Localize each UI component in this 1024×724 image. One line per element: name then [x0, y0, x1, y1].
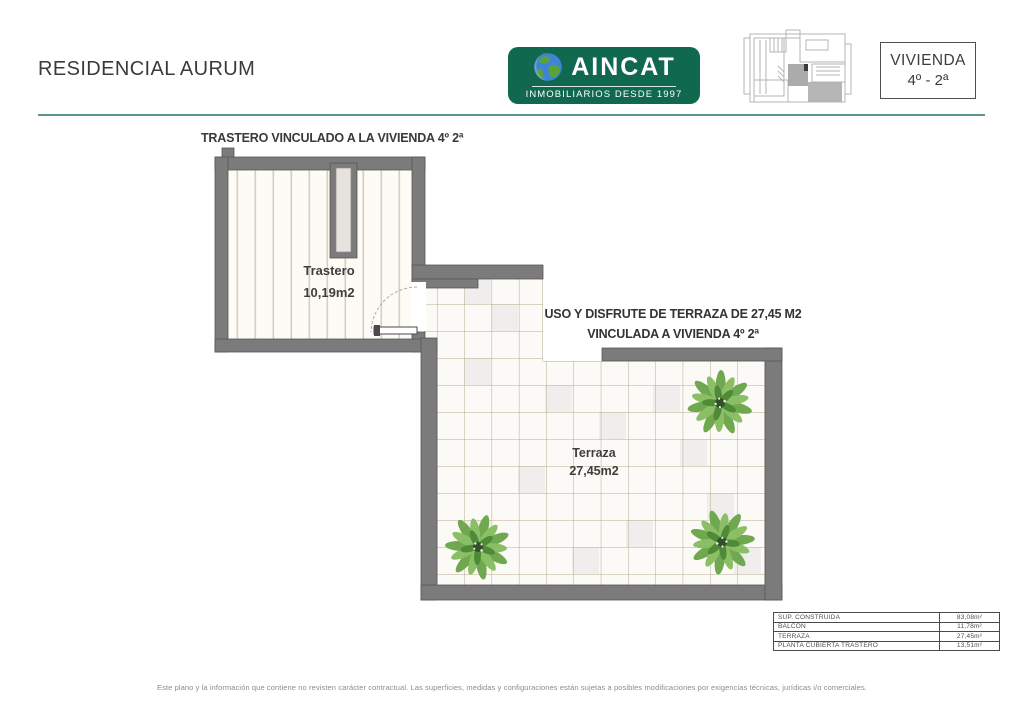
table-row: TERRAZA 27,45m² — [774, 632, 1000, 642]
table-row: SUP. CONSTRUIDA 83,08m² — [774, 613, 1000, 623]
table-row: BALCÓN 11,78m² — [774, 622, 1000, 632]
surface-value: 27,45m² — [940, 632, 1000, 642]
page-title: RESIDENCIAL AURUM — [38, 58, 255, 81]
terraza-note-line2: VINCULADA A VIVIENDA 4º 2ª — [587, 327, 759, 341]
terraza-note-line1: USO Y DISFRUTE DE TERRAZA DE 27,45 M2 — [544, 307, 801, 321]
table-row: PLANTA CUBIERTA TRASTERO 13,51m² — [774, 641, 1000, 651]
surface-label: TERRAZA — [774, 632, 940, 642]
globe-icon — [532, 51, 564, 83]
trastero-area: 10,19m2 — [303, 285, 354, 300]
logo-tagline: INMOBILIARIOS DESDE 1997 — [526, 89, 683, 100]
logo-wordmark: AINCAT — [571, 55, 676, 80]
surface-label: PLANTA CUBIERTA TRASTERO — [774, 641, 940, 651]
surface-value: 11,78m² — [940, 622, 1000, 632]
floor-plan: TRASTERO VINCULADO A LA VIVIENDA 4º 2ª — [200, 125, 810, 615]
terraza-label: Terraza — [572, 446, 617, 460]
trastero-caption: TRASTERO VINCULADO A LA VIVIENDA 4º 2ª — [201, 131, 464, 145]
unit-badge-line2: 4º - 2ª — [907, 72, 948, 89]
unit-badge-line1: VIVIENDA — [890, 52, 966, 70]
disclaimer-text: Este plano y la información que contiene… — [0, 683, 1024, 692]
unit-badge: VIVIENDA 4º - 2ª — [880, 42, 976, 99]
terraza-area: 27,45m2 — [569, 464, 618, 478]
surface-value: 83,08m² — [940, 613, 1000, 623]
surface-label: SUP. CONSTRUIDA — [774, 613, 940, 623]
surface-label: BALCÓN — [774, 622, 940, 632]
aincat-logo: AINCAT INMOBILIARIOS DESDE 1997 — [508, 47, 700, 104]
trastero-room — [222, 163, 418, 344]
building-key-plan — [740, 14, 855, 110]
header-divider — [38, 114, 985, 116]
plan-sheet: RESIDENCIAL AURUM AINCAT INMOBILIARIOS D… — [0, 0, 1024, 724]
surface-value: 13,51m² — [940, 641, 1000, 651]
trastero-label: Trastero — [303, 263, 354, 278]
surface-table: SUP. CONSTRUIDA 83,08m² BALCÓN 11,78m² T… — [773, 612, 1000, 651]
partition-inner — [336, 168, 351, 252]
logo-divider — [532, 86, 676, 87]
